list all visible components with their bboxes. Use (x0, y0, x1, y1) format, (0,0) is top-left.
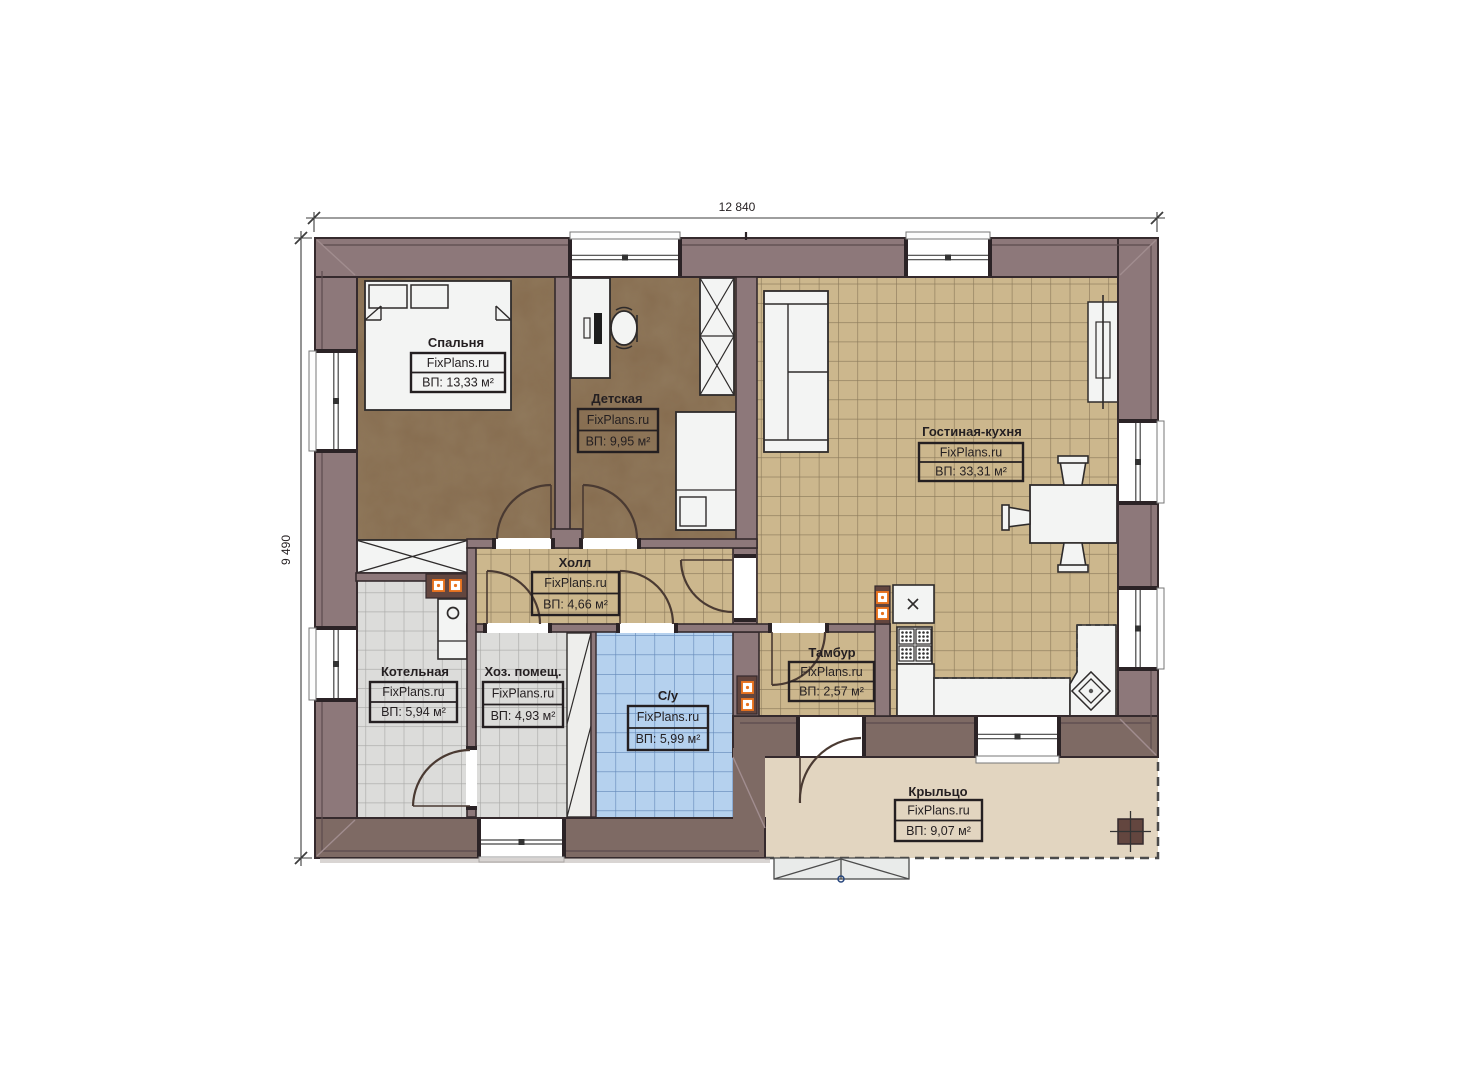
svg-text:Гостиная-кухня: Гостиная-кухня (922, 424, 1022, 439)
svg-text:ВП: 5,99 м²: ВП: 5,99 м² (636, 732, 701, 746)
svg-text:FixPlans.ru: FixPlans.ru (587, 413, 650, 427)
svg-text:FixPlans.ru: FixPlans.ru (492, 686, 555, 700)
svg-text:ВП: 9,95 м²: ВП: 9,95 м² (586, 434, 651, 448)
svg-text:FixPlans.ru: FixPlans.ru (427, 356, 490, 370)
svg-text:Хоз. помещ.: Хоз. помещ. (484, 664, 561, 679)
svg-text:Детская: Детская (591, 391, 642, 406)
svg-text:Спальня: Спальня (428, 335, 484, 350)
svg-text:FixPlans.ru: FixPlans.ru (382, 685, 445, 699)
svg-text:ВП: 5,94 м²: ВП: 5,94 м² (381, 705, 446, 719)
svg-text:9 490: 9 490 (279, 535, 293, 565)
svg-text:FixPlans.ru: FixPlans.ru (800, 665, 863, 679)
svg-text:FixPlans.ru: FixPlans.ru (907, 803, 970, 817)
svg-text:Тамбур: Тамбур (808, 645, 855, 660)
svg-text:Холл: Холл (559, 555, 592, 570)
svg-text:ВП: 2,57 м²: ВП: 2,57 м² (799, 684, 864, 698)
svg-text:Котельная: Котельная (381, 664, 449, 679)
svg-text:FixPlans.ru: FixPlans.ru (940, 446, 1003, 460)
svg-text:FixPlans.ru: FixPlans.ru (637, 710, 700, 724)
svg-text:ВП: 4,66 м²: ВП: 4,66 м² (543, 597, 608, 611)
svg-text:ВП: 33,31 м²: ВП: 33,31 м² (935, 465, 1007, 479)
svg-text:Крыльцо: Крыльцо (908, 784, 967, 799)
svg-text:12 840: 12 840 (719, 200, 756, 214)
svg-text:ВП: 9,07 м²: ВП: 9,07 м² (906, 824, 971, 838)
svg-text:ВП: 13,33 м²: ВП: 13,33 м² (422, 375, 494, 389)
svg-text:С/у: С/у (658, 688, 679, 703)
svg-text:FixPlans.ru: FixPlans.ru (544, 576, 607, 590)
svg-text:ВП: 4,93 м²: ВП: 4,93 м² (491, 709, 556, 723)
